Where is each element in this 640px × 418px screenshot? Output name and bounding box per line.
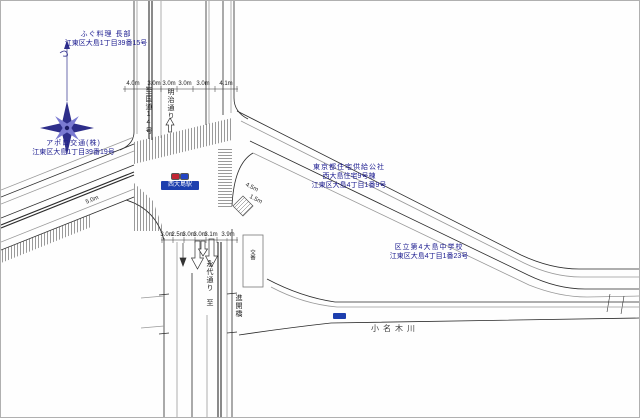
cad-map-canvas: ふぐ料理 長部 江東区大島1丁目39番15号 アポロ交通(株) 江東区大島1丁目… <box>0 0 640 418</box>
landmark-address: 江東区大島4丁目1番23号 <box>368 252 490 261</box>
dim-label: 4.1m <box>219 81 232 87</box>
dim-label: 4.0m <box>126 81 139 87</box>
landmark-building: 西大島住宅9号棟 <box>288 172 410 181</box>
compass-rose-icon <box>40 40 94 155</box>
dim-label: 3.0m <box>162 81 175 87</box>
landmark-address: 江東区大島1丁目39番15号 <box>46 39 166 48</box>
street-label-meiji-dori: 明治通り <box>166 88 174 120</box>
landmark-label-school: 区立第4大島中学校 江東区大島4丁目1番23号 <box>368 243 490 261</box>
river-marker <box>333 313 346 319</box>
dim-label: 3.9m <box>221 232 234 238</box>
landmark-name: アポロ交通(株) <box>11 139 136 148</box>
landmark-label-apollo: アポロ交通(株) 江東区大島1丁目39番19号 <box>11 139 136 157</box>
dim-label: 3.0m <box>178 81 191 87</box>
landmark-name: ふぐ料理 長部 <box>46 30 166 39</box>
street-label-to-route14: 至国道14号 <box>144 87 152 135</box>
operator-blue-mark-icon <box>180 173 189 180</box>
dim-label: 3.0m <box>196 81 209 87</box>
road-east-section <box>232 111 640 314</box>
koban-building <box>243 235 263 287</box>
river-label-onagigawa: 小名木川 <box>371 323 419 334</box>
dim-label: 3.1m <box>204 232 217 238</box>
landmark-label-kousha: 東京都住宅供給公社 西大島住宅9号棟 江東区大島4丁目1番9号 <box>288 163 410 190</box>
river-onagigawa <box>239 279 640 335</box>
subway-operator-icon <box>171 173 188 179</box>
to-prefix: 至 <box>145 87 152 95</box>
building-footprints <box>233 196 263 287</box>
landmark-label-fugu: ふぐ料理 長部 江東区大島1丁目39番15号 <box>46 30 166 48</box>
bridge-label-shinkaibashi: 進開橋 <box>234 294 242 318</box>
operator-red-mark-icon <box>171 173 180 180</box>
koban-label: 交番 <box>249 249 255 260</box>
landmark-address: 江東区大島1丁目39番19号 <box>11 148 136 157</box>
landmark-name: 区立第4大島中学校 <box>368 243 490 252</box>
street-label-eitai-dori: 永代通り <box>205 260 213 292</box>
street-label-eitai-to: 至 <box>205 299 213 307</box>
station-badge: 西大島駅 <box>161 181 199 190</box>
landmark-address: 江東区大島4丁目1番9号 <box>288 181 410 190</box>
dim-label: 3.0m <box>147 81 160 87</box>
landmark-name: 東京都住宅供給公社 <box>288 163 410 172</box>
road-drawing <box>1 1 640 418</box>
street-name: 国道14号 <box>145 95 152 135</box>
road-south-section <box>141 229 237 418</box>
